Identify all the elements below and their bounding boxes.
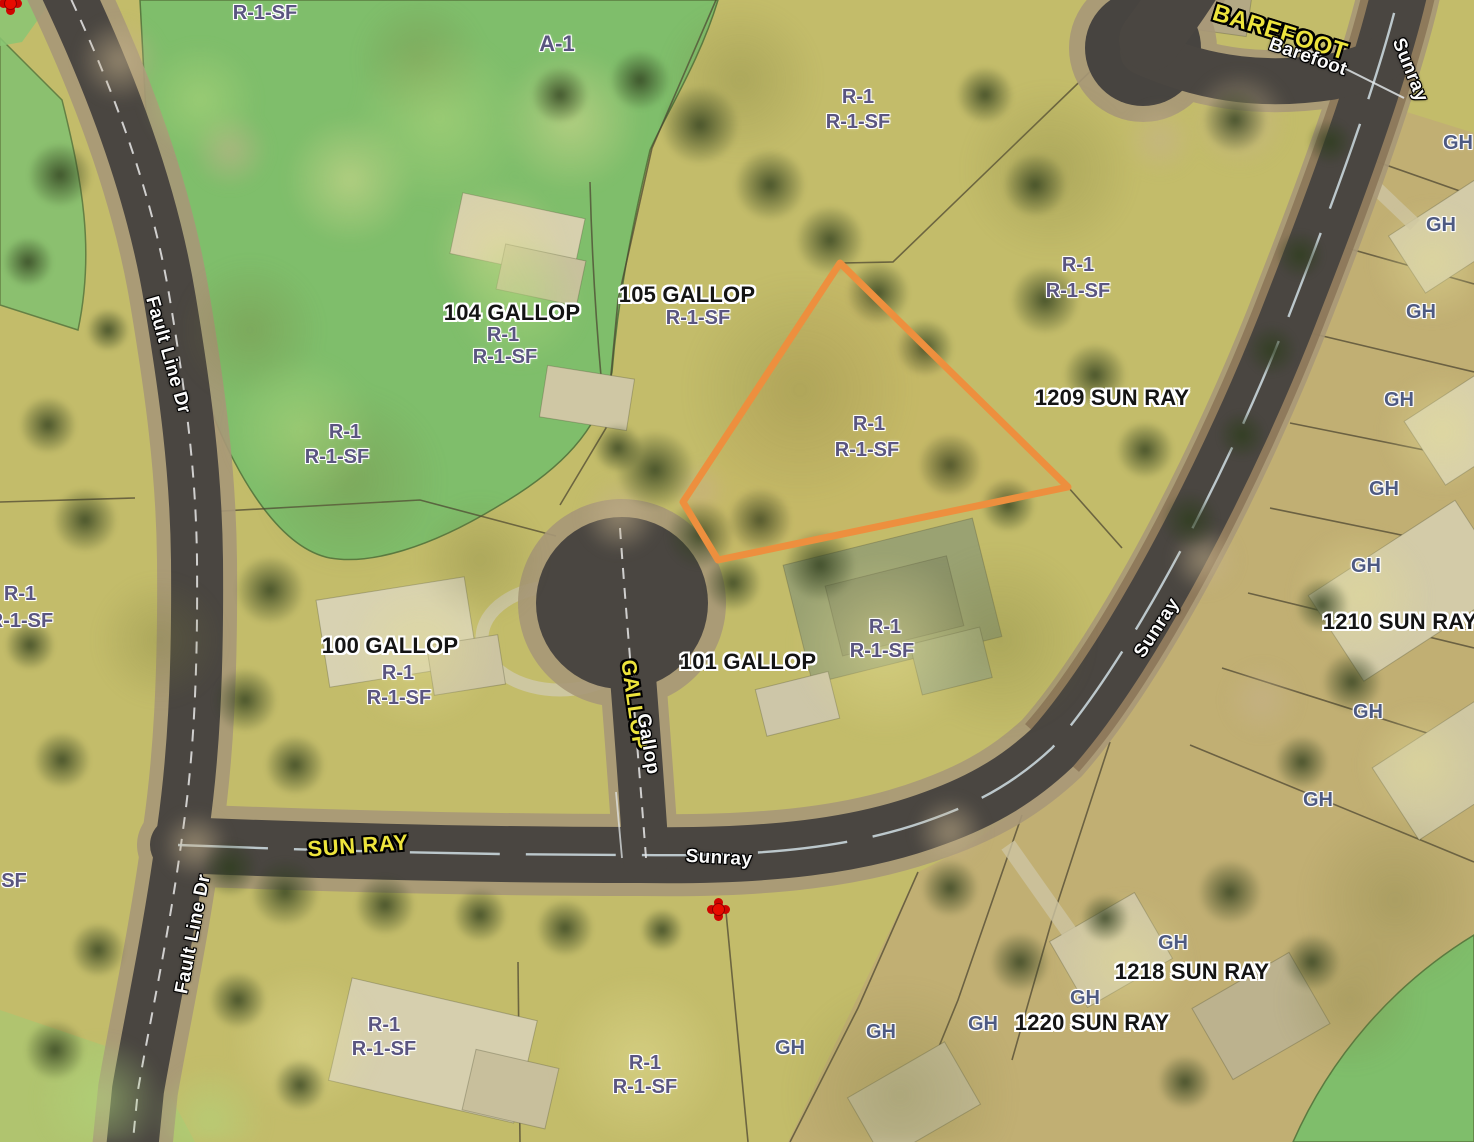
gh-district-area [788, 95, 1474, 1142]
zoning-label: R-1 [629, 1053, 661, 1073]
street-label-secondary: Sunray [1389, 35, 1432, 104]
road-shoulders [62, 0, 1402, 1142]
street-label-primary: SUN RAY [307, 831, 409, 860]
zoning-label: R-1-SF [835, 440, 899, 460]
zoning-label: R-1-SF [473, 347, 537, 367]
zoning-label: GH [1369, 479, 1399, 499]
street-label-primary: GALLOP [617, 658, 650, 751]
parcel-boundaries [0, 0, 1474, 1142]
zoning-label: GH [1070, 988, 1100, 1008]
zoning-label: GH [1303, 790, 1333, 810]
zoning-label: GH [1426, 215, 1456, 235]
zoning-label: GH [1353, 702, 1383, 722]
terrain-texture-layer [0, 0, 1474, 1142]
street-label-secondary: Fault Line Dr [172, 873, 214, 996]
zoning-label: SF [1, 871, 27, 891]
address-label: 1209 SUN RAY [1035, 387, 1189, 409]
zoning-label: R-1 [487, 325, 519, 345]
address-label: 105 GALLOP [619, 284, 755, 306]
zoning-label: R-1-SF [352, 1039, 416, 1059]
road-centerlines [62, 0, 1404, 1142]
zoning-label: R-1 [842, 87, 874, 107]
zoning-label: R-1 [4, 584, 36, 604]
land-base [0, 0, 1474, 1142]
zoning-label: R-1-SF [613, 1077, 677, 1097]
red-cross-marker[interactable] [712, 903, 725, 916]
map-markers-layer [0, 0, 1474, 1142]
address-label: 1218 SUN RAY [1115, 961, 1269, 983]
zoning-label: R-1 [1062, 255, 1094, 275]
zoning-label: R-1 [382, 663, 414, 683]
zoning-label: R-1-SF [850, 641, 914, 661]
zoning-label: GH [1406, 302, 1436, 322]
street-label-primary: BAREFOOT [1210, 1, 1350, 65]
tree-canopy-layer [0, 0, 1474, 1142]
driveways [1008, 165, 1415, 940]
zoning-label: R-1 [368, 1015, 400, 1035]
map-labels-layer: 104 GALLOP105 GALLOP100 GALLOP101 GALLOP… [0, 0, 1474, 1142]
street-label-secondary: Barefoot [1266, 35, 1349, 79]
street-label-secondary: Sunray [685, 847, 753, 869]
zoning-label: GH [775, 1038, 805, 1058]
street-label-secondary: Fault Line Dr [142, 294, 194, 416]
golf-course-areas [0, 0, 1474, 1142]
address-label: 1220 SUN RAY [1015, 1012, 1169, 1034]
street-label-secondary: Gallop [633, 712, 662, 776]
zoning-label: R-1-SF [826, 112, 890, 132]
zoning-label: GH [1158, 933, 1188, 953]
zoning-label: R-1 [869, 617, 901, 637]
selected-parcel-outline[interactable] [683, 263, 1068, 560]
zoning-label: GH [1351, 556, 1381, 576]
zoning-label: R-1-SF [233, 3, 297, 23]
zoning-label: GH [1443, 133, 1473, 153]
zoning-label: GH [866, 1022, 896, 1042]
aerial-base-map [0, 0, 1474, 1142]
zoning-label: R-1-SF [305, 447, 369, 467]
address-label: 101 GALLOP [680, 651, 816, 673]
house-footprints [316, 0, 1474, 1142]
red-cross-marker[interactable] [4, 0, 17, 10]
zoning-label: GH [1384, 390, 1414, 410]
zoning-label: R-1-SF [666, 308, 730, 328]
zoning-label: R-1 [329, 422, 361, 442]
selection-overlay [0, 0, 1474, 1142]
address-label: 104 GALLOP [444, 302, 580, 324]
zoning-label: R-1-SF [1046, 281, 1110, 301]
zoning-label: A-1 [539, 33, 574, 55]
zoning-label: GH [968, 1014, 998, 1034]
street-label-secondary: Sunray [1131, 595, 1183, 661]
zoning-label: R-1 [853, 414, 885, 434]
roads-asphalt [62, 0, 1402, 1142]
zoning-label: R-1-SF [367, 688, 431, 708]
address-label: 1210 SUN RAY [1323, 611, 1474, 633]
map-viewport[interactable]: 104 GALLOP105 GALLOP100 GALLOP101 GALLOP… [0, 0, 1474, 1142]
address-label: 100 GALLOP [322, 635, 458, 657]
zoning-label: R-1-SF [0, 611, 53, 631]
road-median-dirt [1052, 0, 1402, 748]
